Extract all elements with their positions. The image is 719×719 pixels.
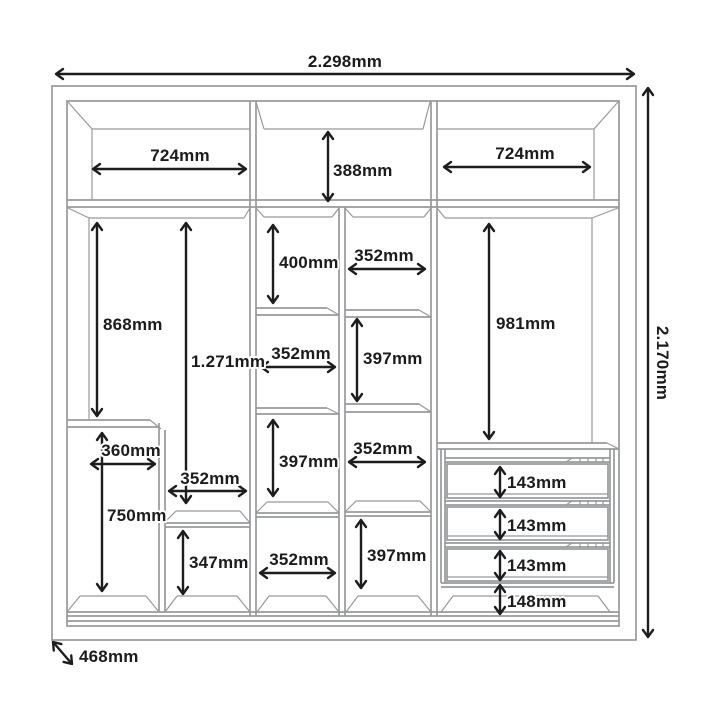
label-right-hanging-height: 981mm	[496, 314, 556, 333]
dimension-labels: 2.298mm 2.170mm 468mm 724mm 388mm 724mm …	[79, 52, 672, 666]
label-top-right-width: 724mm	[495, 144, 555, 163]
label-overall-height: 2.170mm	[653, 326, 672, 400]
label-cabinet-height: 750mm	[107, 506, 167, 525]
label-top-center-height: 388mm	[333, 161, 393, 180]
drawer-rail	[445, 543, 610, 547]
drawer-rail	[445, 501, 610, 505]
label-base-gap-height: 148mm	[507, 592, 567, 611]
drawer-rail	[445, 458, 610, 462]
label-cl-cubby2-width: 352mm	[271, 344, 331, 363]
label-left-full-height: 1.271mm	[191, 352, 265, 371]
label-cabinet-width: 360mm	[101, 441, 161, 460]
label-depth: 468mm	[79, 647, 139, 666]
label-drawer3-height: 143mm	[507, 556, 567, 575]
diagram-canvas: 2.298mm 2.170mm 468mm 724mm 388mm 724mm …	[0, 0, 719, 719]
label-left-cubby-height: 347mm	[189, 553, 249, 572]
wardrobe-dimension-diagram: 2.298mm 2.170mm 468mm 724mm 388mm 724mm …	[0, 0, 719, 719]
label-cl-cubby3-height: 397mm	[279, 452, 339, 471]
label-drawer2-height: 143mm	[507, 516, 567, 535]
center-left-shelves	[256, 308, 339, 517]
label-cl-cubby1-height: 400mm	[279, 253, 339, 272]
label-left-hanging-height: 868mm	[103, 315, 163, 334]
label-cr-cubby1-width: 352mm	[354, 246, 414, 265]
left-lower-shelf-structure	[164, 511, 250, 527]
label-drawer1-height: 143mm	[507, 473, 567, 492]
label-top-left-width: 724mm	[150, 146, 210, 165]
right-shelf-structure	[437, 443, 619, 449]
arrow-depth	[53, 642, 72, 664]
label-cr-cubby2-height: 397mm	[363, 349, 423, 368]
label-overall-width: 2.298mm	[308, 52, 382, 71]
label-left-shelf-width: 352mm	[180, 469, 240, 488]
label-cr-cubby3-width: 352mm	[353, 439, 413, 458]
label-cr-cubby4-height: 397mm	[367, 546, 427, 565]
label-cl-cubby4-width: 352mm	[269, 550, 329, 569]
